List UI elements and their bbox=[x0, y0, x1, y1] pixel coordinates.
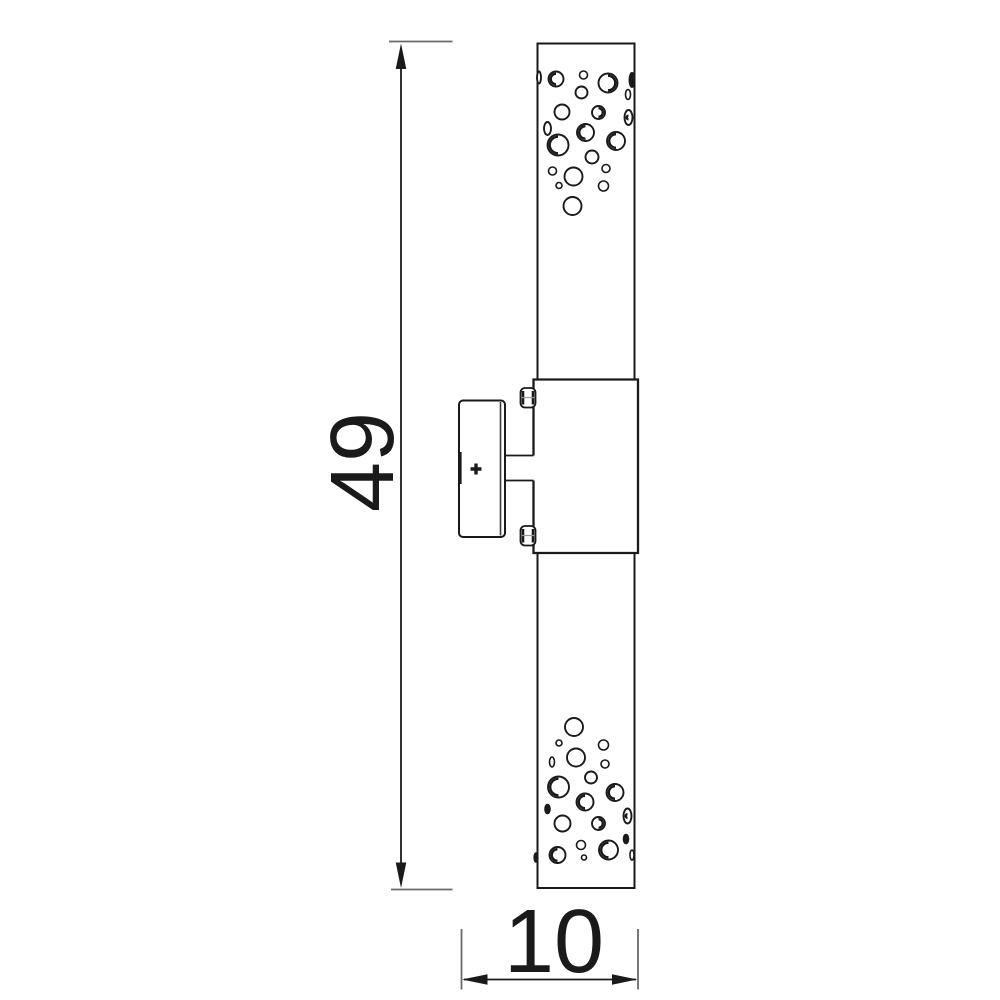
perforation-hole bbox=[599, 181, 609, 191]
mounting-screw-top bbox=[521, 388, 536, 408]
perforation-hole bbox=[626, 90, 631, 100]
perforation-hole bbox=[550, 757, 555, 767]
fixture-body bbox=[459, 44, 638, 889]
dimension-arrow-up-icon bbox=[396, 44, 407, 70]
dimension-arrow-left-icon bbox=[462, 974, 488, 985]
perforation-hole bbox=[549, 167, 557, 175]
perforation-hole bbox=[599, 740, 609, 750]
perforation-hole bbox=[630, 850, 634, 860]
perforation-hole bbox=[565, 718, 583, 736]
perforation-hole bbox=[556, 183, 562, 189]
mount-plate-outline bbox=[459, 401, 505, 538]
depth-dimension: 10 bbox=[462, 892, 639, 992]
perforation-hole bbox=[534, 853, 538, 862]
perforation-hole bbox=[545, 805, 550, 814]
dimension-arrow-down-icon bbox=[396, 863, 407, 889]
perforation-hole bbox=[624, 835, 629, 844]
height-dimension: 49 bbox=[313, 42, 453, 890]
mount-arm bbox=[505, 456, 534, 481]
perforation-hole bbox=[537, 72, 541, 84]
bottom-tube-fill bbox=[538, 553, 635, 888]
technical-drawing-page: 49 10 bbox=[0, 0, 1000, 1000]
perforation-hole bbox=[556, 740, 562, 746]
perforation-hole bbox=[576, 87, 588, 99]
wall-mount-plate bbox=[459, 401, 505, 538]
perforation-hole bbox=[577, 841, 586, 850]
perforation-hole bbox=[582, 855, 587, 860]
drawing-canvas: 49 10 bbox=[0, 0, 1000, 1000]
perforation-hole bbox=[586, 151, 599, 164]
mounting-screw-bottom bbox=[521, 526, 536, 546]
perforation-hole bbox=[565, 168, 583, 186]
housing-fill bbox=[534, 380, 639, 554]
dimension-arrow-right-icon bbox=[612, 974, 638, 985]
perforation-hole bbox=[555, 816, 571, 832]
perforation-hole bbox=[601, 760, 609, 768]
perforation-hole bbox=[585, 772, 597, 784]
perforation-hole bbox=[544, 122, 551, 135]
perforation-hole bbox=[602, 165, 610, 173]
height-dimension-label: 49 bbox=[313, 412, 413, 512]
depth-dimension-label: 10 bbox=[504, 892, 604, 992]
perforation-hole bbox=[580, 71, 588, 79]
perforation-hole bbox=[567, 749, 585, 767]
perforation-hole bbox=[630, 73, 635, 87]
perforation-hole bbox=[564, 197, 582, 215]
perforation-hole bbox=[555, 105, 570, 120]
